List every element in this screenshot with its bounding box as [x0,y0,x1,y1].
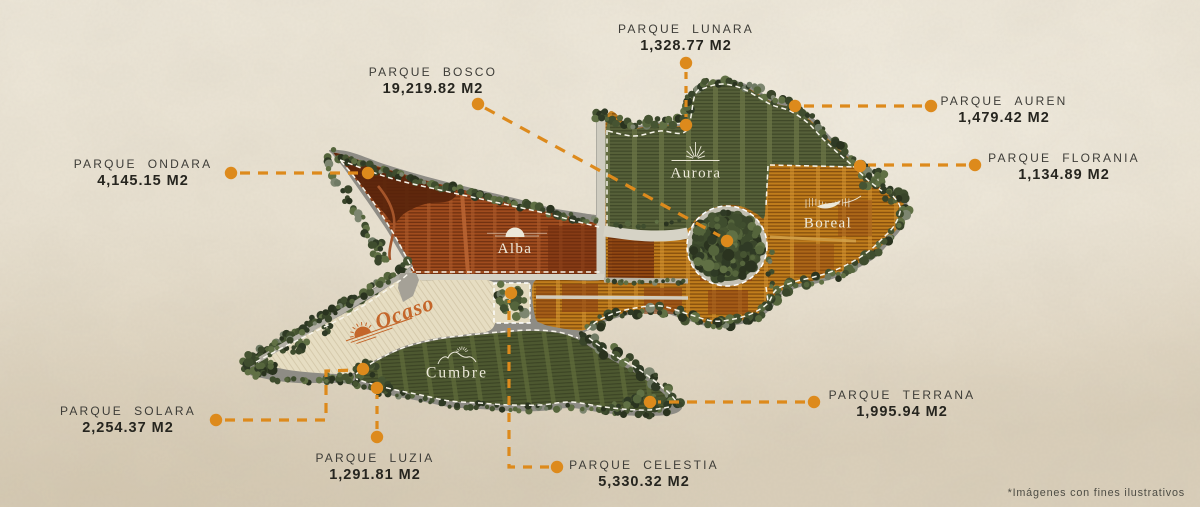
svg-text:Aurora: Aurora [671,166,722,182]
svg-text:Boreal: Boreal [804,216,852,232]
svg-text:1,479.42 M2: 1,479.42 M2 [958,110,1050,126]
svg-text:PARQUE ONDARA: PARQUE ONDARA [74,157,213,171]
svg-text:2,254.37 M2: 2,254.37 M2 [82,420,174,436]
svg-text:1,291.81 M2: 1,291.81 M2 [329,467,421,483]
svg-text:PARQUE TERRANA: PARQUE TERRANA [829,388,976,402]
svg-text:PARQUE AUREN: PARQUE AUREN [940,94,1067,108]
svg-text:*Imágenes con fines ilustrativ: *Imágenes con fines ilustrativos [1008,487,1185,499]
svg-text:4,145.15 M2: 4,145.15 M2 [97,173,189,189]
svg-text:1,328.77 M2: 1,328.77 M2 [640,38,732,54]
svg-text:5,330.32 M2: 5,330.32 M2 [598,474,690,490]
svg-text:PARQUE SOLARA: PARQUE SOLARA [60,404,196,418]
svg-text:PARQUE LUZIA: PARQUE LUZIA [315,451,434,465]
svg-text:Alba: Alba [498,241,533,257]
svg-text:PARQUE BOSCO: PARQUE BOSCO [369,65,497,79]
svg-text:PARQUE FLORANIA: PARQUE FLORANIA [988,151,1140,165]
svg-text:1,995.94 M2: 1,995.94 M2 [856,404,948,420]
svg-text:PARQUE CELESTIA: PARQUE CELESTIA [569,458,719,472]
svg-text:PARQUE LUNARA: PARQUE LUNARA [618,22,754,36]
svg-text:1,134.89 M2: 1,134.89 M2 [1018,167,1110,183]
svg-text:19,219.82 M2: 19,219.82 M2 [383,81,484,97]
svg-text:Cumbre: Cumbre [426,365,488,382]
